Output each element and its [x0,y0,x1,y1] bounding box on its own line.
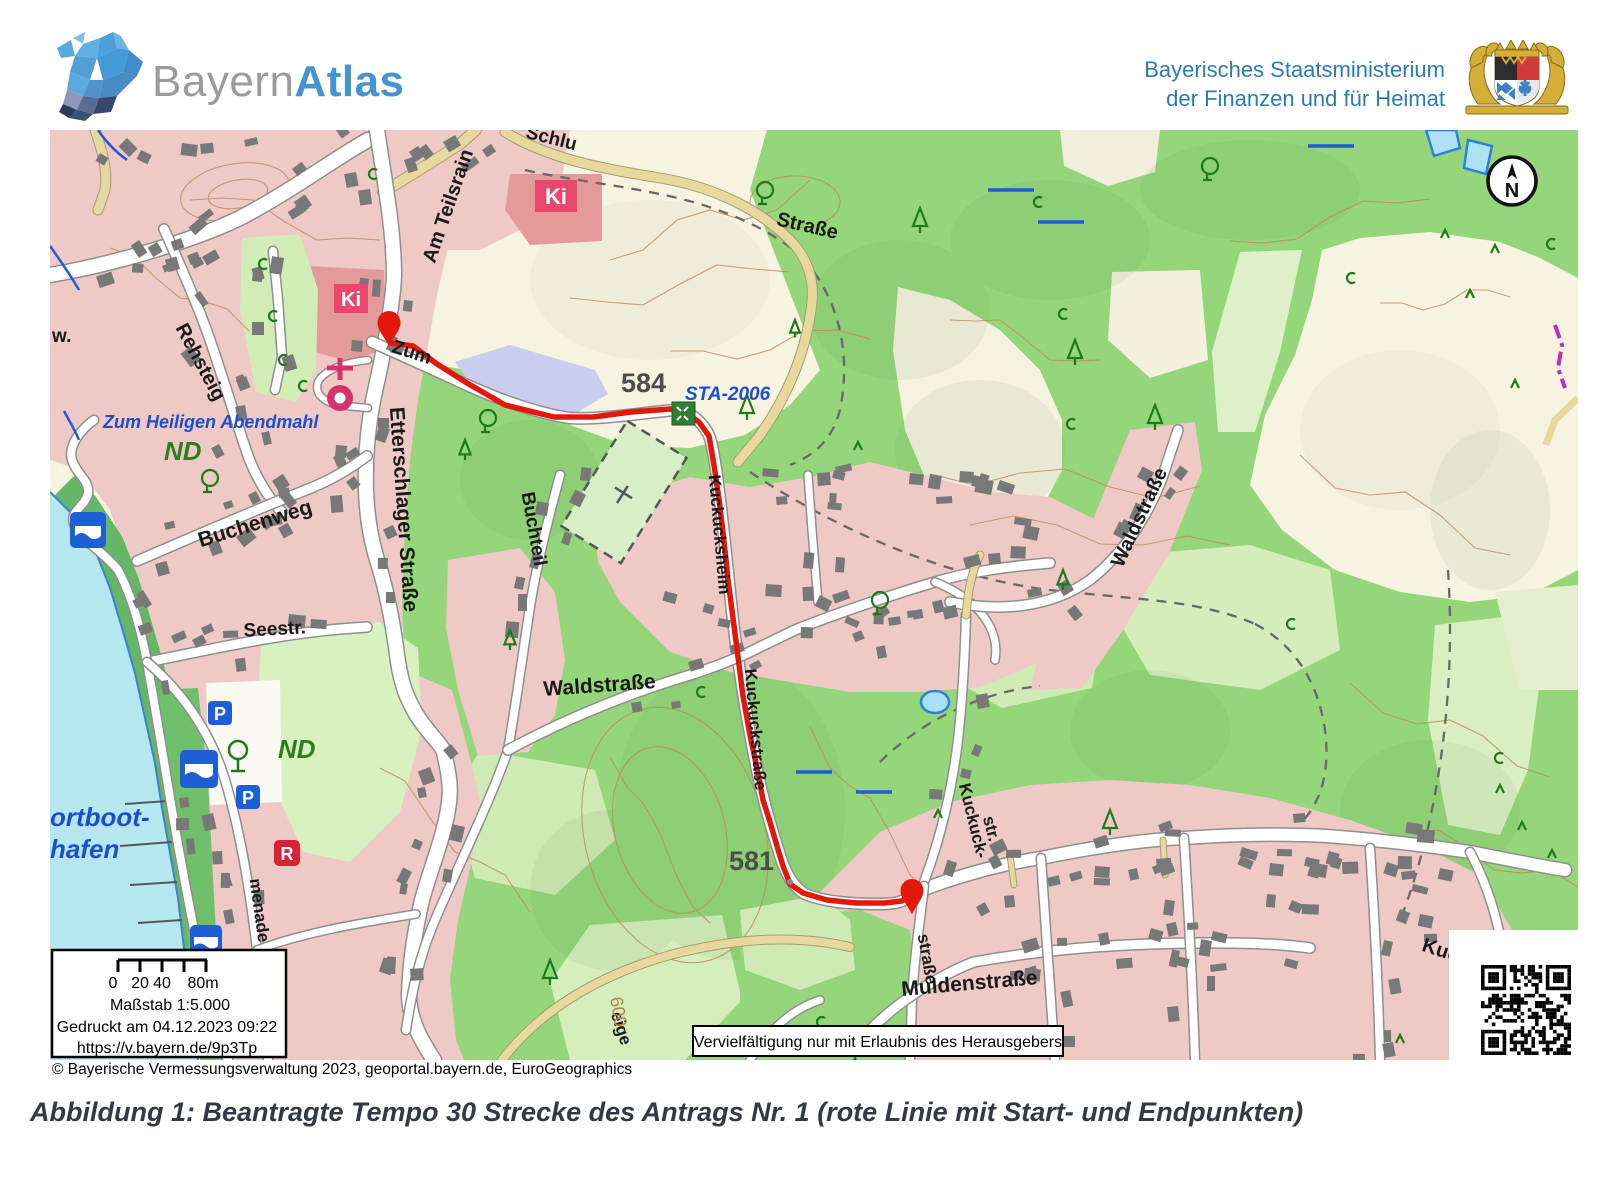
svg-text:20: 20 [131,975,149,992]
svg-text:P: P [242,788,254,808]
svg-text:Ki: Ki [545,184,567,209]
svg-text:ND: ND [164,436,202,466]
svg-text:STA-2006: STA-2006 [685,384,771,405]
svg-text:0: 0 [109,975,118,992]
svg-text:w.: w. [51,326,71,347]
svg-text:https://v.bayern.de/9p3Tp: https://v.bayern.de/9p3Tp [77,1040,257,1057]
svg-text:hafen: hafen [50,834,119,864]
svg-text:581: 581 [729,846,774,876]
svg-text:R: R [281,844,294,864]
svg-text:40: 40 [153,975,171,992]
svg-text:ND: ND [278,734,316,764]
svg-text:Ki: Ki [341,289,361,311]
svg-text:P: P [214,704,226,724]
svg-text:Vervielfältigung nur mit Erlau: Vervielfältigung nur mit Erlaubnis des H… [694,1034,1062,1051]
svg-text:N: N [1505,180,1519,202]
svg-text:584: 584 [621,368,666,398]
svg-text:Seestr.: Seestr. [243,617,306,641]
svg-text:Maßstab 1:5.000: Maßstab 1:5.000 [110,997,230,1014]
svg-text:Zum Heiligen Abendmahl: Zum Heiligen Abendmahl [102,412,319,432]
svg-text:80m: 80m [187,975,218,992]
svg-text:ortboot-: ortboot- [50,802,150,832]
svg-text:Gedruckt am 04.12.2023 09:22: Gedruckt am 04.12.2023 09:22 [57,1019,278,1036]
